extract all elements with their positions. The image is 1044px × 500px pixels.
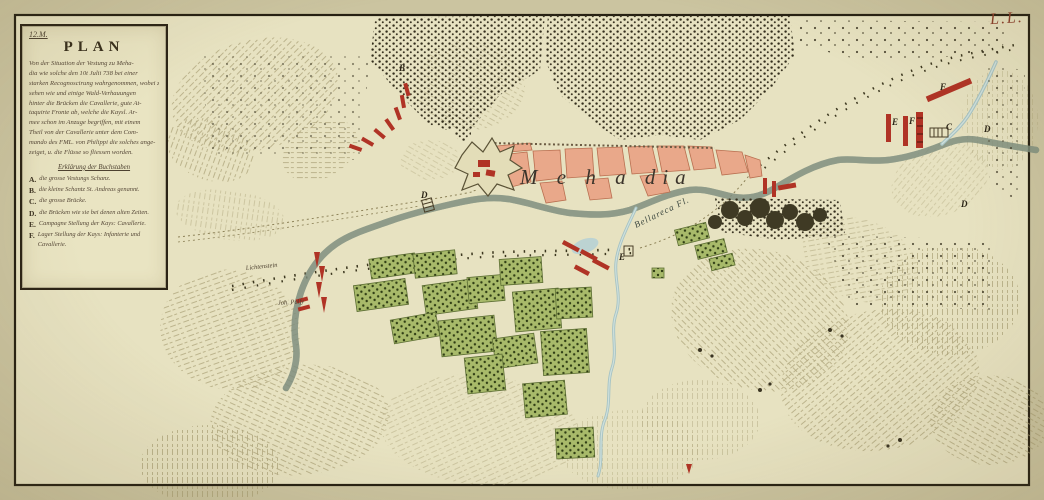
legend-text: Lager Stellung der Kays: Infanterie und … <box>38 230 159 249</box>
legend-text: die grosse Vestungs Schanz. <box>39 174 110 185</box>
map-letter-D: D <box>960 199 968 209</box>
legend-item: E.Campagne Stellung der Kays: Cavallerie… <box>29 219 159 230</box>
legend-text: die kleine Schantz St. Andreas genannt. <box>39 185 140 196</box>
legend-key: B. <box>29 185 36 196</box>
map-letter-D: D <box>983 124 991 134</box>
legend-text: die Brücken wie sie bei denen alten Zeit… <box>39 208 149 219</box>
map-title: PLAN <box>29 39 159 56</box>
map-letter-F: F <box>939 82 946 92</box>
corner-mark: L.L. <box>990 9 1025 29</box>
catalog-number: 12.M. <box>29 30 159 39</box>
map-letter-E: E <box>891 117 898 127</box>
description-line: dia wie solche den 10t Julii 738 bei ein… <box>29 69 159 79</box>
legend-item: D.die Brücken wie sie bei denen alten Ze… <box>29 208 159 219</box>
map-description: Von der Situation der Vestung zu Meha-di… <box>29 59 159 158</box>
map-letter-F: F <box>908 116 915 126</box>
description-line: starken Recognoscirung wahrgenommen, wob… <box>29 79 159 89</box>
legend-item: B.die kleine Schantz St. Andreas genannt… <box>29 185 159 196</box>
legend-key: E. <box>29 219 36 230</box>
legend-item: C.die grosse Brücke. <box>29 196 159 207</box>
legend-key: C. <box>29 196 36 207</box>
title-cartouche: 12.M. PLAN Von der Situation der Vestung… <box>20 24 168 290</box>
legend-list: A.die grosse Vestungs Schanz.B.die klein… <box>29 174 159 249</box>
legend-item: F.Lager Stellung der Kays: Infanterie un… <box>29 230 159 249</box>
town-name-label: M e h a dia <box>519 165 693 189</box>
map-letter-B: B <box>398 63 405 73</box>
legend-text: die grosse Brücke. <box>39 196 86 207</box>
map-sheet: M e h a dia Bellareca Fl. Lichtenstein J… <box>0 0 1044 500</box>
description-line: mee schon im Anzuge begriffen, mit einem <box>29 118 159 128</box>
legend-key: D. <box>29 208 36 219</box>
legend-item: A.die grosse Vestungs Schanz. <box>29 174 159 185</box>
description-line: sehen wie und einige Wald-Verhauungen <box>29 89 159 99</box>
map-letter-D: D <box>420 190 428 200</box>
legend-key: A. <box>29 174 36 185</box>
map-letter-E: E <box>618 252 625 262</box>
description-line: mando des FML. von Philippi die solches … <box>29 138 159 148</box>
description-line: taquirte Fronte ab, welche die Kaysl. Ar… <box>29 108 159 118</box>
legend-heading: Erklärung der Buchstaben <box>29 164 159 171</box>
legend-text: Campagne Stellung der Kays: Cavallerie. <box>39 219 146 230</box>
description-line: Von der Situation der Vestung zu Meha- <box>29 59 159 69</box>
description-line: zeiget, u. die Flüsse so fliessen worden… <box>29 148 159 158</box>
description-line: Theil von der Cavallerie unter dem Com- <box>29 128 159 138</box>
description-line: hinter die Brücken die Cavallerie, gute … <box>29 99 159 109</box>
map-letter-C: C <box>946 122 953 132</box>
legend-key: F. <box>29 230 35 249</box>
